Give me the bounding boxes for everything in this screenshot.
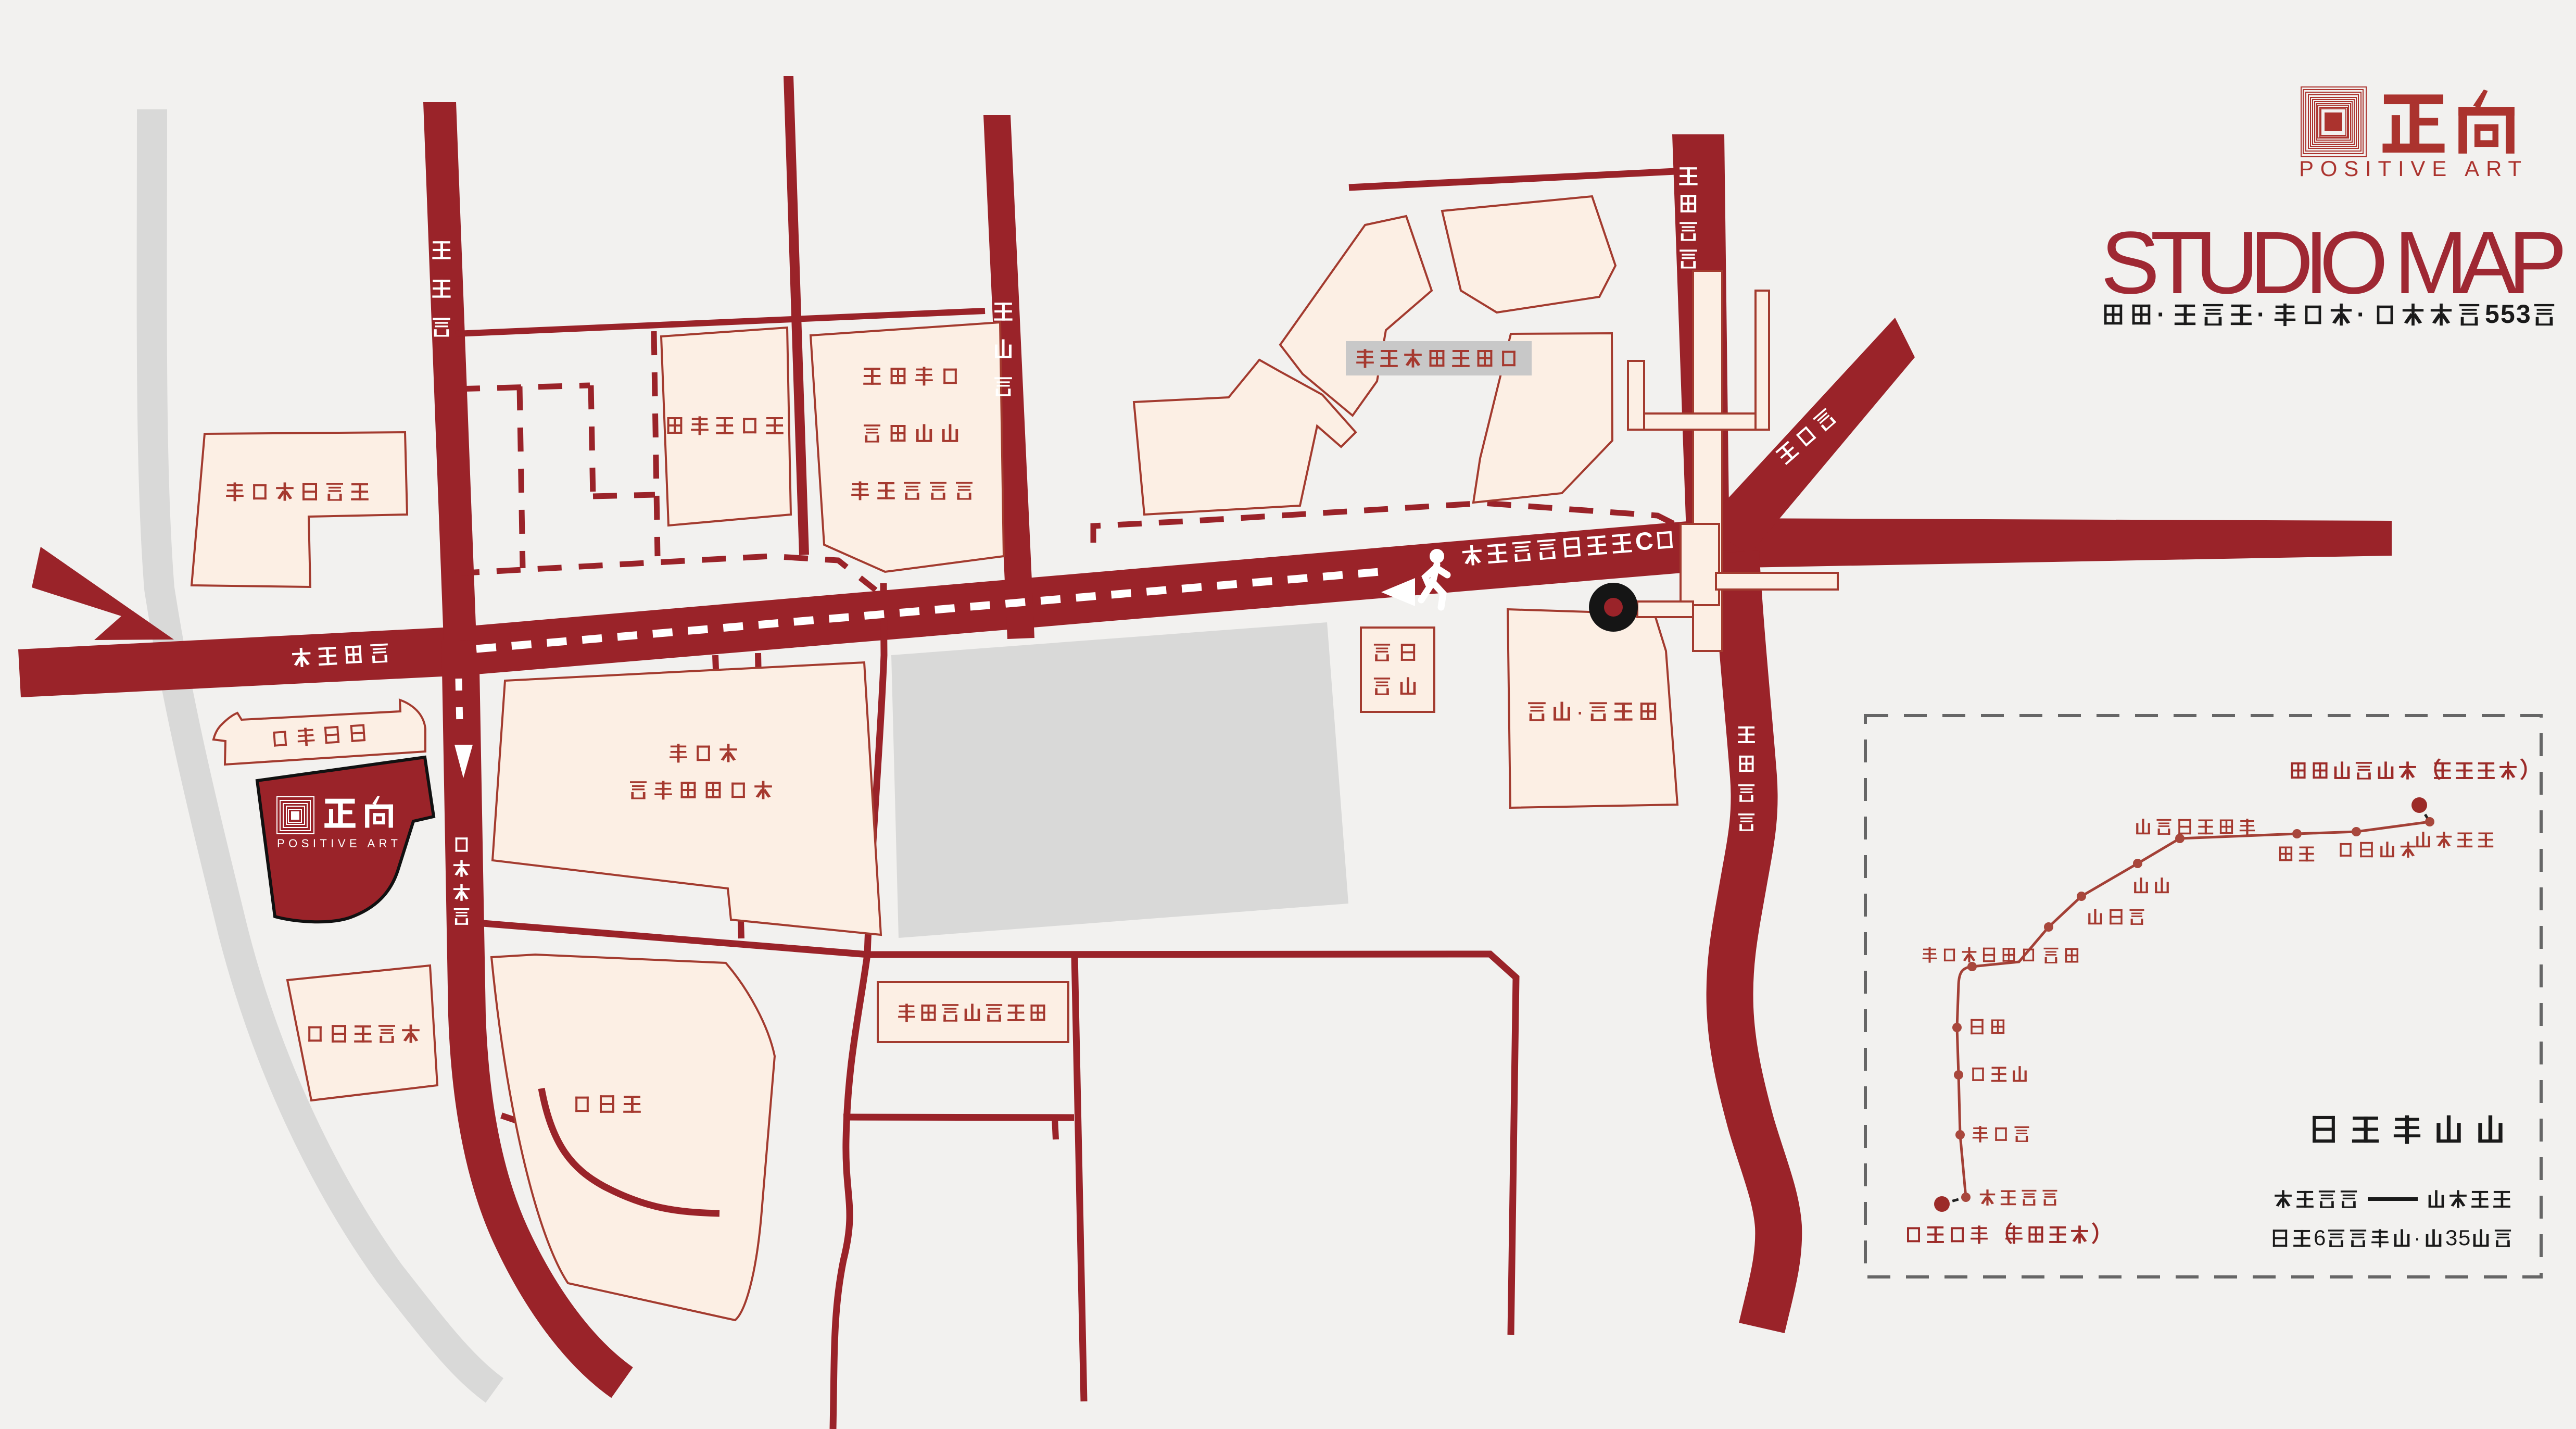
svg-text:·: ·	[2257, 301, 2265, 329]
svg-text:6: 6	[2314, 1225, 2326, 1250]
svg-text:·: ·	[2357, 301, 2365, 329]
svg-text:）: ）	[2520, 758, 2542, 782]
svg-text:·: ·	[2157, 301, 2165, 329]
svg-text:）: ）	[2091, 1222, 2113, 1246]
svg-text:STUDIO MAP: STUDIO MAP	[2101, 214, 2567, 312]
svg-text:C: C	[1634, 527, 1655, 556]
svg-text:POSITIVE ART: POSITIVE ART	[277, 837, 398, 850]
svg-text:5: 5	[2458, 1225, 2470, 1250]
svg-text:·: ·	[1576, 698, 1584, 725]
svg-text:3: 3	[2445, 1225, 2457, 1250]
svg-text:POSITIVE ART: POSITIVE ART	[2299, 156, 2521, 181]
svg-text:5: 5	[2485, 299, 2499, 329]
svg-text:3: 3	[2516, 299, 2531, 329]
svg-text:·: ·	[2414, 1225, 2421, 1250]
svg-text:5: 5	[2501, 299, 2515, 329]
